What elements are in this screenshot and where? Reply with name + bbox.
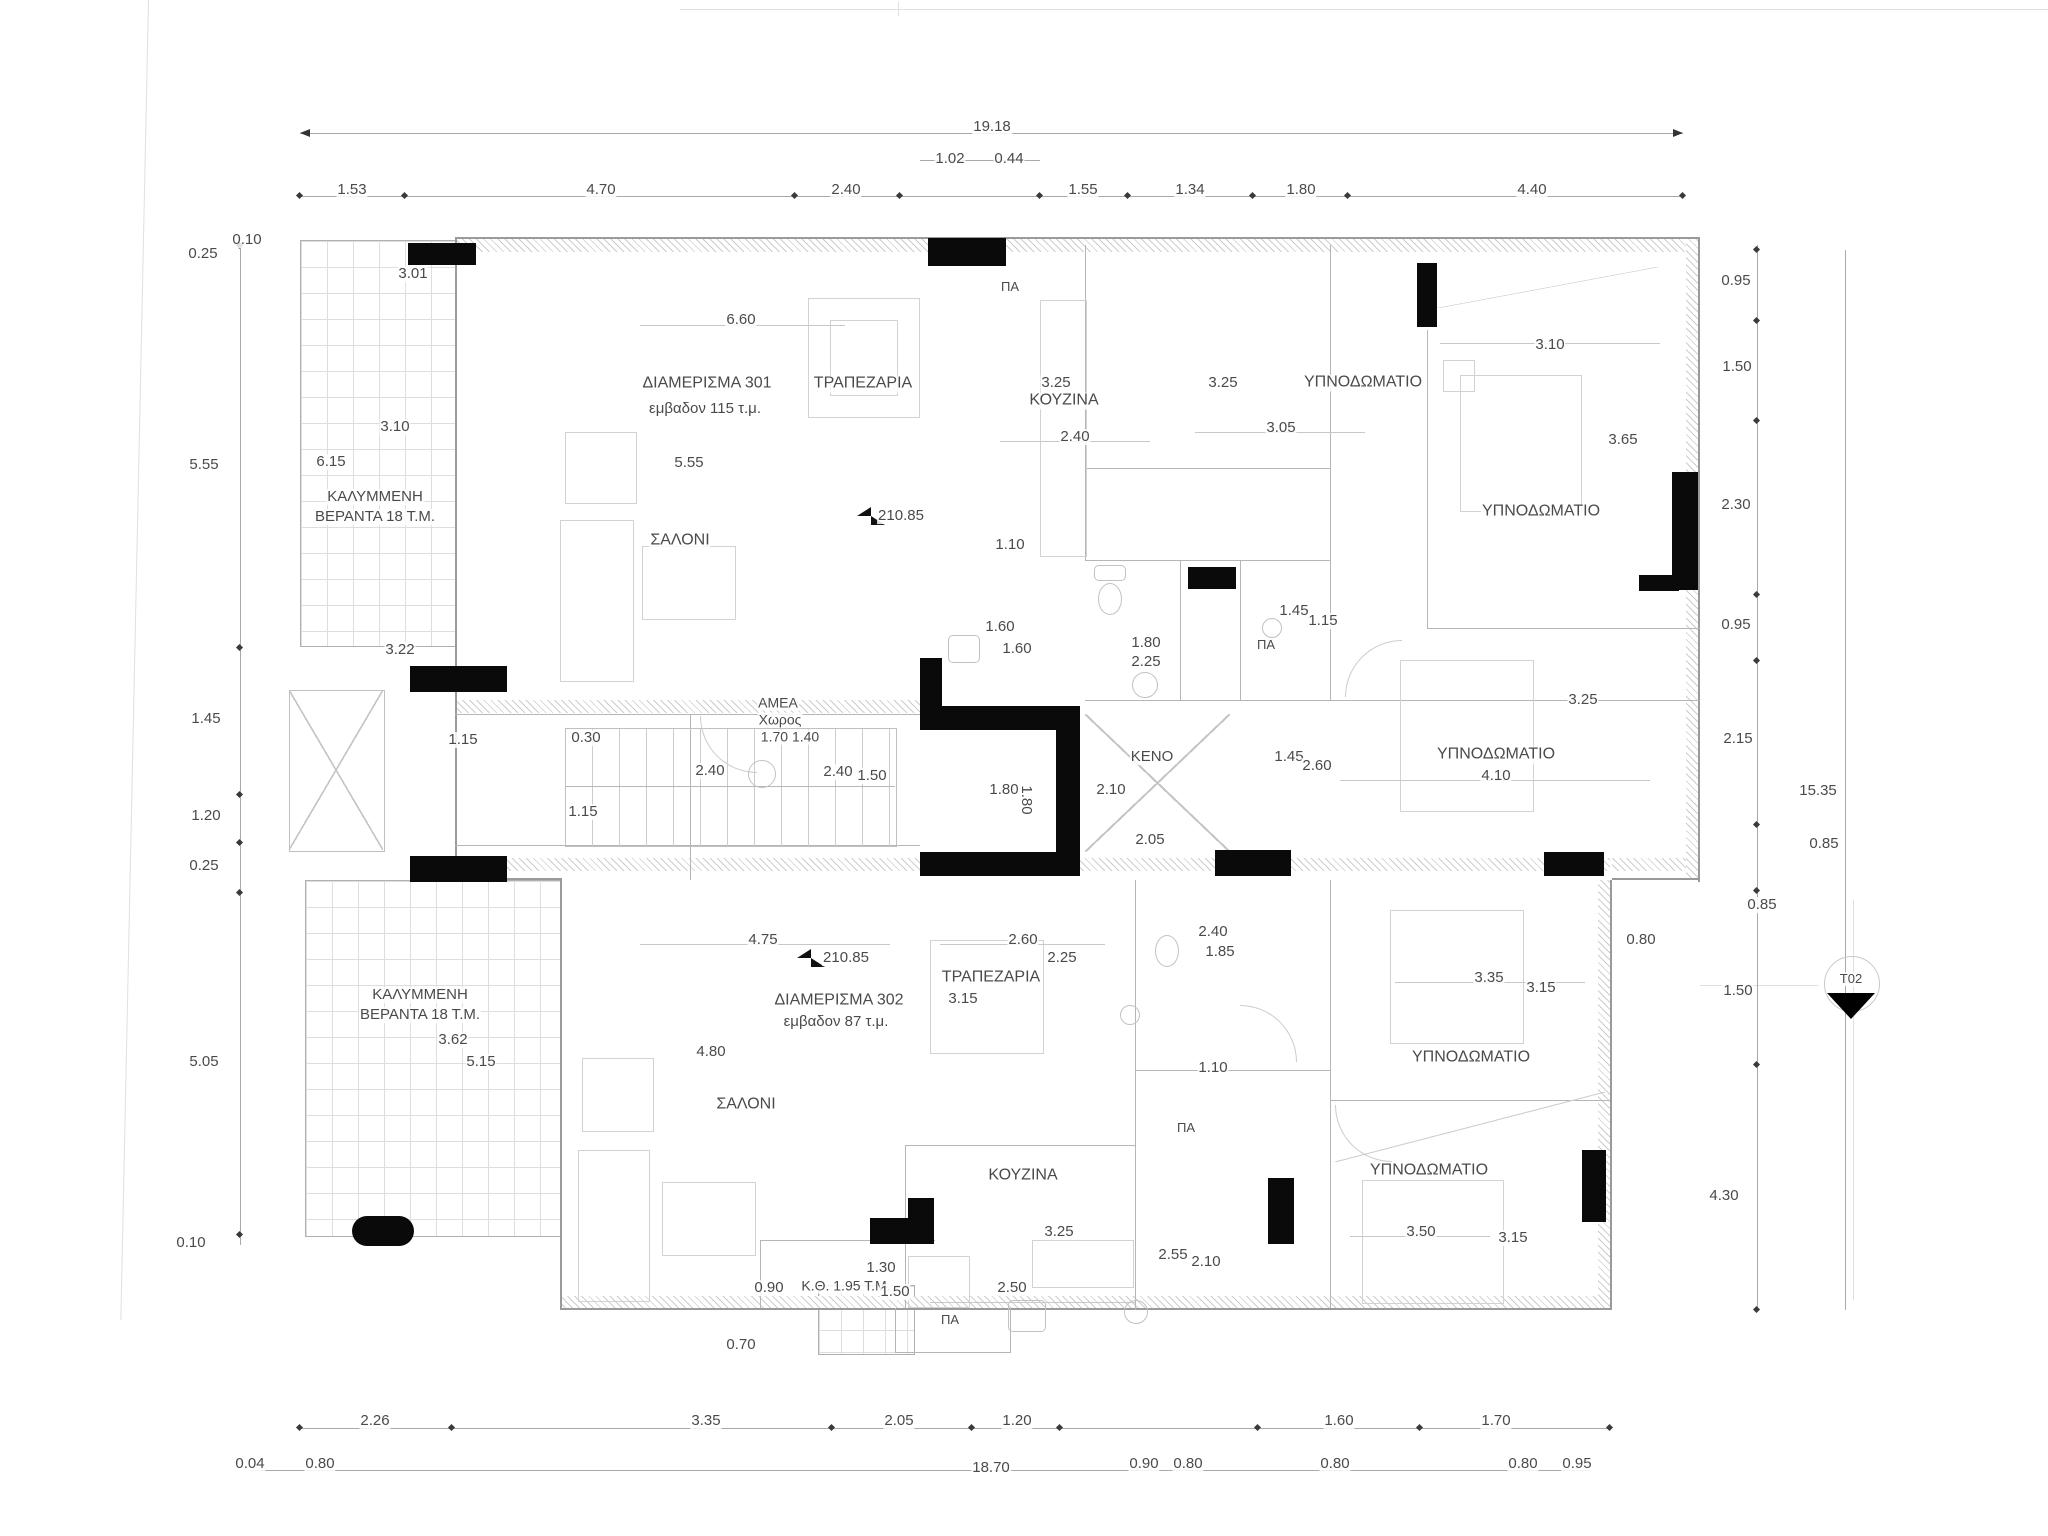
plan-label: 1.45: [1278, 603, 1309, 619]
plan-label: 1.80: [1018, 784, 1034, 815]
plan-label: 1.50: [856, 768, 887, 784]
plan-label: ΚΕΝΟ: [1130, 749, 1175, 765]
plan-label: εμβαδον 115 τ.μ.: [648, 401, 762, 417]
plan-label: 1.50: [1722, 983, 1753, 999]
plan-label: 2.40: [694, 763, 725, 779]
plan-label: 0.25: [187, 246, 218, 262]
plan-label: 0.30: [570, 730, 601, 746]
floor-plan-sheet: 19.181.020.441.534.702.401.551.341.804.4…: [0, 0, 2048, 1536]
plan-label: ΚΑΛΥΜΜΕΝΗ: [371, 987, 469, 1003]
plan-label: T02: [1839, 972, 1863, 986]
plan-label: 0.80: [1172, 1456, 1203, 1472]
plan-label: 1.50: [879, 1284, 910, 1300]
plan-label: 3.01: [397, 266, 428, 282]
plan-label: 3.35: [1473, 970, 1504, 986]
plan-label: ΚΑΛΥΜΜΕΝΗ: [326, 489, 424, 505]
plan-label: 3.05: [1265, 420, 1296, 436]
plan-label: 1.55: [1067, 182, 1098, 198]
plan-label: 1.70: [1480, 1413, 1511, 1429]
plan-label: 1.34: [1174, 182, 1205, 198]
plan-label: 2.60: [1301, 758, 1332, 774]
plan-label: 210.85: [877, 508, 925, 524]
plan-label: 3.50: [1405, 1224, 1436, 1240]
plan-label: 1.45: [190, 711, 221, 727]
plan-label: 2.05: [1134, 832, 1165, 848]
plan-label: 2.10: [1095, 782, 1126, 798]
plan-label: 0.80: [1319, 1456, 1350, 1472]
plan-label: 6.15: [315, 454, 346, 470]
plan-label: ΚΟΥΖΙΝΑ: [1028, 393, 1099, 410]
plan-label: 0.85: [1808, 836, 1839, 852]
plan-label: 3.22: [384, 642, 415, 658]
plan-label: ΥΠΝΟΔΩΜΑΤΙΟ: [1411, 1050, 1531, 1067]
plan-label: 2.25: [1130, 654, 1161, 670]
plan-label: ΑΜΕΑ: [757, 696, 799, 711]
plan-label: 2.15: [1722, 731, 1753, 747]
plan-label: 1.15: [447, 732, 478, 748]
plan-label: 3.15: [1497, 1230, 1528, 1246]
plan-label: 4.80: [695, 1044, 726, 1060]
plan-label: 1.20: [1001, 1413, 1032, 1429]
plan-label: 3.10: [1534, 337, 1565, 353]
plan-label: 5.05: [188, 1054, 219, 1070]
plan-label: 1.15: [567, 804, 598, 820]
plan-label: ΥΠΝΟΔΩΜΑΤΙΟ: [1481, 504, 1601, 521]
plan-label: 1.50: [1721, 359, 1752, 375]
plan-label: 2.40: [822, 764, 853, 780]
plan-label: ΚΟΥΖΙΝΑ: [987, 1168, 1058, 1185]
plan-label: ΥΠΝΟΔΩΜΑΤΙΟ: [1369, 1163, 1489, 1180]
plan-label: 6.60: [725, 312, 756, 328]
plan-label: 0.10: [231, 232, 262, 248]
plan-label: 2.10: [1190, 1254, 1221, 1270]
plan-label: 2.26: [359, 1413, 390, 1429]
plan-label: ΔΙΑΜΕΡΙΣΜΑ 301: [641, 376, 772, 393]
plan-label: 2.40: [1059, 429, 1090, 445]
plan-label: 3.35: [690, 1413, 721, 1429]
plan-label: 1.10: [994, 537, 1025, 553]
plan-label: 1.20: [190, 808, 221, 824]
plan-label: 5.15: [465, 1054, 496, 1070]
plan-label: ΤΡΑΠΕΖΑΡΙΑ: [941, 970, 1041, 987]
plan-label: ΔΙΑΜΕΡΙΣΜΑ 302: [773, 993, 904, 1010]
plan-label: 1.80: [988, 782, 1019, 798]
plan-label: 1.02: [934, 151, 965, 167]
plan-label: 1.70 1.40: [760, 730, 820, 745]
plan-label: 18.70: [971, 1460, 1011, 1476]
plan-label: 1.80: [1130, 635, 1161, 651]
plan-label: ΠΑ: [1176, 1121, 1196, 1135]
plan-label: ΠΑ: [1000, 280, 1020, 294]
plan-label: 0.90: [1128, 1456, 1159, 1472]
plan-label: 0.95: [1561, 1456, 1592, 1472]
plan-label: 3.15: [1525, 980, 1556, 996]
plan-label: 0.95: [1720, 273, 1751, 289]
plan-label: 1.15: [1307, 613, 1338, 629]
plan-label: 0.25: [188, 858, 219, 874]
plan-label: 3.25: [1040, 375, 1071, 391]
plan-label: 4.75: [747, 932, 778, 948]
plan-label: 2.05: [883, 1413, 914, 1429]
plan-label: 0.85: [1746, 897, 1777, 913]
plan-label: 0.44: [993, 151, 1024, 167]
plan-label: 0.10: [175, 1235, 206, 1251]
plan-label: 3.10: [379, 419, 410, 435]
plan-label: 3.65: [1607, 432, 1638, 448]
plan-label: 2.25: [1046, 950, 1077, 966]
labels-layer: 19.181.020.441.534.702.401.551.341.804.4…: [0, 0, 2048, 1536]
plan-label: 0.90: [753, 1280, 784, 1296]
plan-label: 2.50: [996, 1280, 1027, 1296]
plan-label: ΣΑΛΟΝΙ: [649, 533, 710, 550]
plan-label: ΥΠΝΟΔΩΜΑΤΙΟ: [1436, 747, 1556, 764]
plan-label: ΥΠΝΟΔΩΜΑΤΙΟ: [1303, 375, 1423, 392]
plan-label: 2.55: [1157, 1247, 1188, 1263]
plan-label: 1.60: [984, 619, 1015, 635]
plan-label: ΒΕΡΑΝΤΑ 18 Τ.Μ.: [314, 509, 436, 525]
plan-label: 0.95: [1720, 617, 1751, 633]
plan-label: 4.40: [1516, 182, 1547, 198]
plan-label: 4.70: [585, 182, 616, 198]
plan-label: 210.85: [822, 950, 870, 966]
plan-label: 4.10: [1480, 768, 1511, 784]
plan-label: 5.55: [673, 455, 704, 471]
plan-label: 3.25: [1043, 1224, 1074, 1240]
plan-label: ΠΑ: [1256, 638, 1276, 652]
plan-label: 15.35: [1798, 783, 1838, 799]
plan-label: Κ.Θ. 1.95 Τ.Μ.: [800, 1279, 891, 1294]
plan-label: 3.25: [1567, 692, 1598, 708]
plan-label: ΣΑΛΟΝΙ: [715, 1097, 776, 1114]
plan-label: ΒΕΡΑΝΤΑ 18 Τ.Μ.: [359, 1007, 481, 1023]
plan-label: 19.18: [972, 119, 1012, 135]
plan-label: 0.80: [1625, 932, 1656, 948]
plan-label: 1.80: [1285, 182, 1316, 198]
plan-label: 1.60: [1001, 641, 1032, 657]
plan-label: 3.15: [947, 991, 978, 1007]
plan-label: 0.70: [725, 1337, 756, 1353]
plan-label: 2.30: [1720, 497, 1751, 513]
plan-label: 1.30: [865, 1260, 896, 1276]
plan-label: 1.45: [1273, 749, 1304, 765]
plan-label: 2.40: [830, 182, 861, 198]
plan-label: 3.25: [1207, 375, 1238, 391]
plan-label: 5.55: [188, 457, 219, 473]
plan-label: εμβαδον 87 τ.μ.: [783, 1014, 890, 1030]
plan-label: 0.04: [234, 1456, 265, 1472]
plan-label: 3.62: [437, 1032, 468, 1048]
plan-label: ΠΑ: [940, 1313, 960, 1327]
plan-label: ΤΡΑΠΕΖΑΡΙΑ: [813, 376, 913, 393]
plan-label: 2.60: [1007, 932, 1038, 948]
plan-label: 1.85: [1204, 944, 1235, 960]
plan-label: 2.40: [1197, 924, 1228, 940]
plan-label: 0.80: [304, 1456, 335, 1472]
plan-label: 1.10: [1197, 1060, 1228, 1076]
plan-label: 0.80: [1507, 1456, 1538, 1472]
plan-label: 1.60: [1323, 1413, 1354, 1429]
plan-label: Χωρος: [758, 713, 803, 728]
plan-label: 4.30: [1708, 1188, 1739, 1204]
plan-label: 1.53: [336, 182, 367, 198]
